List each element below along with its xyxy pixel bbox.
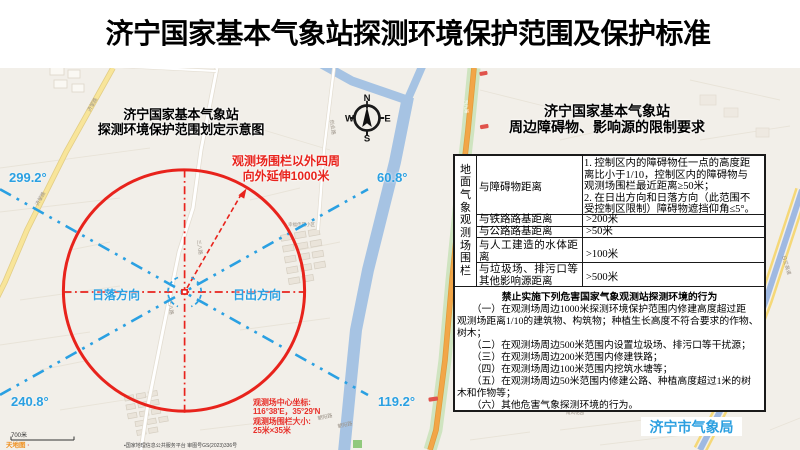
svg-text:天地图 ·: 天地图 · [6, 440, 29, 449]
svg-text:W: W [345, 114, 354, 125]
svg-text:700米: 700米 [11, 431, 27, 439]
svg-text:E: E [384, 114, 390, 125]
svg-text:N: N [364, 93, 371, 104]
svg-text:▪国家地理信息公共服务平台 审图号GS(2023)336号: ▪国家地理信息公共服务平台 审图号GS(2023)336号 [124, 442, 237, 449]
svg-text:S: S [364, 134, 370, 145]
